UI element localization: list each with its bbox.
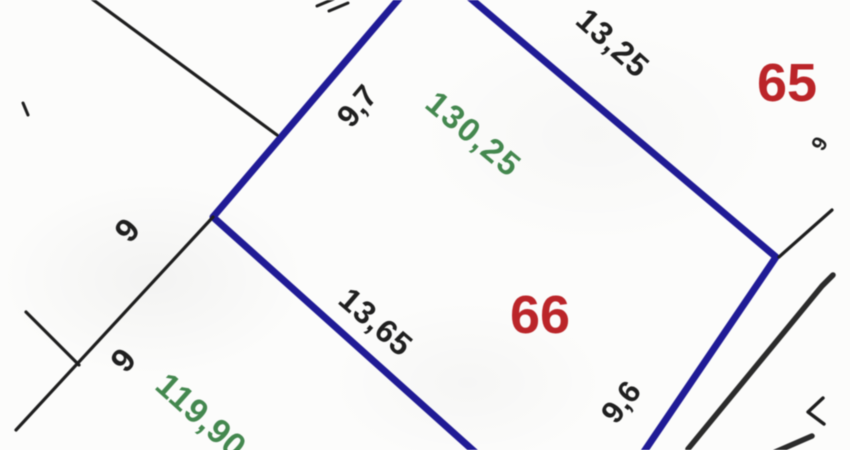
parcel-number-65[interactable]: 65: [757, 56, 817, 110]
length-9-6: 9,6: [596, 375, 647, 428]
length-9-edge: 9: [808, 134, 832, 155]
cadastral-map: 13,25659,7130,2596613,6599,6119,909: [0, 0, 850, 450]
green-value-119-90: 119,90: [149, 367, 252, 450]
length-13-25: 13,25: [571, 3, 656, 84]
map-labels-layer: 13,25659,7130,2596613,6599,6119,909: [0, 0, 850, 450]
length-9-7: 9,7: [331, 80, 382, 133]
length-13-65: 13,65: [333, 282, 418, 362]
parcel-number-66[interactable]: 66: [510, 288, 570, 342]
green-value-130-25: 130,25: [420, 85, 528, 183]
length-9-lower: 9: [104, 342, 141, 377]
length-9-upper: 9: [108, 212, 145, 247]
